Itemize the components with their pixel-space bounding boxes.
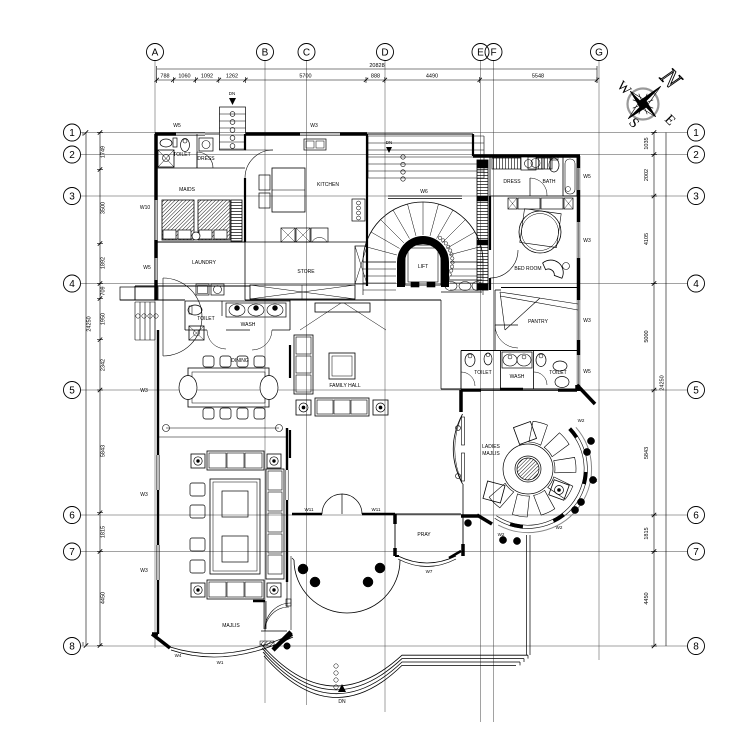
svg-text:W3: W3 — [140, 388, 148, 394]
svg-text:2: 2 — [693, 150, 699, 161]
svg-text:TOILET: TOILET — [197, 316, 214, 322]
svg-text:5700: 5700 — [299, 74, 311, 80]
svg-text:6: 6 — [693, 511, 699, 522]
svg-text:4490: 4490 — [426, 74, 438, 80]
svg-text:W7: W7 — [426, 569, 433, 574]
svg-text:1: 1 — [693, 128, 699, 139]
svg-text:788: 788 — [160, 74, 169, 80]
svg-text:B: B — [262, 48, 269, 59]
svg-text:7: 7 — [693, 547, 699, 558]
svg-text:TOILET: TOILET — [173, 152, 190, 158]
svg-text:1: 1 — [69, 128, 75, 139]
svg-text:W6: W6 — [420, 189, 428, 195]
svg-text:MAJLIS: MAJLIS — [482, 451, 500, 457]
svg-text:DRESS: DRESS — [503, 179, 521, 185]
svg-text:W11: W11 — [305, 507, 314, 512]
svg-text:2: 2 — [69, 150, 75, 161]
svg-text:1035: 1035 — [644, 137, 650, 149]
svg-text:4450: 4450 — [644, 592, 650, 604]
svg-text:3500: 3500 — [101, 202, 107, 214]
svg-text:2342: 2342 — [101, 359, 107, 371]
svg-text:W2: W2 — [591, 478, 598, 483]
svg-text:MAJLIS: MAJLIS — [222, 623, 240, 629]
svg-text:FAMILY HALL: FAMILY HALL — [329, 383, 360, 389]
svg-text:24250: 24250 — [87, 316, 93, 331]
svg-text:8: 8 — [693, 642, 699, 653]
svg-text:W5: W5 — [143, 265, 151, 271]
svg-text:3: 3 — [693, 192, 699, 203]
svg-text:1262: 1262 — [226, 74, 238, 80]
svg-text:2002: 2002 — [644, 169, 650, 181]
svg-text:DN: DN — [386, 140, 393, 145]
svg-text:5548: 5548 — [532, 74, 544, 80]
svg-text:5: 5 — [693, 386, 699, 397]
svg-text:5000: 5000 — [644, 330, 650, 342]
svg-text:709: 709 — [101, 286, 107, 295]
svg-text:W2: W2 — [556, 525, 563, 530]
svg-text:6: 6 — [69, 511, 75, 522]
svg-text:8: 8 — [69, 642, 75, 653]
svg-text:W3: W3 — [583, 318, 591, 324]
svg-text:1092: 1092 — [201, 74, 213, 80]
svg-text:W3: W3 — [310, 123, 318, 129]
svg-text:G: G — [595, 48, 603, 59]
svg-text:PRAY: PRAY — [417, 532, 431, 538]
svg-text:DN: DN — [338, 699, 346, 705]
svg-text:C: C — [303, 48, 310, 59]
svg-text:W5: W5 — [583, 174, 591, 180]
svg-text:5843: 5843 — [644, 447, 650, 459]
svg-text:4: 4 — [693, 279, 699, 290]
svg-text:DN: DN — [229, 91, 236, 96]
svg-text:20828: 20828 — [369, 63, 384, 69]
svg-text:BATH: BATH — [543, 179, 556, 185]
svg-text:1749: 1749 — [101, 146, 107, 158]
svg-text:W1: W1 — [217, 660, 224, 665]
svg-text:W5: W5 — [173, 123, 181, 129]
svg-text:24250: 24250 — [660, 375, 666, 390]
svg-text:888: 888 — [371, 74, 380, 80]
svg-text:3: 3 — [69, 192, 75, 203]
svg-text:4450: 4450 — [101, 592, 107, 604]
svg-text:STORE: STORE — [297, 269, 315, 275]
svg-text:4105: 4105 — [644, 233, 650, 245]
svg-text:LADIES: LADIES — [482, 444, 500, 450]
svg-text:PANTRY: PANTRY — [528, 319, 548, 325]
svg-text:4: 4 — [69, 279, 75, 290]
svg-text:W3: W3 — [140, 568, 148, 574]
svg-text:1950: 1950 — [101, 313, 107, 325]
svg-text:5: 5 — [69, 386, 75, 397]
svg-text:LAUNDRY: LAUNDRY — [192, 260, 216, 266]
svg-text:TOILET: TOILET — [474, 370, 491, 376]
svg-text:7: 7 — [69, 547, 75, 558]
svg-text:W5: W5 — [583, 369, 591, 375]
svg-text:WASH: WASH — [510, 374, 525, 380]
svg-text:WASH: WASH — [241, 322, 256, 328]
svg-text:1060: 1060 — [178, 74, 190, 80]
svg-text:F: F — [490, 48, 496, 59]
svg-text:DINING: DINING — [231, 358, 249, 364]
svg-text:A: A — [152, 48, 159, 59]
svg-text:W4: W4 — [175, 653, 182, 658]
svg-text:W3: W3 — [140, 492, 148, 498]
svg-text:W2: W2 — [578, 418, 585, 423]
svg-text:1815: 1815 — [101, 526, 107, 538]
svg-text:W3: W3 — [583, 238, 591, 244]
svg-text:BED ROOM: BED ROOM — [514, 266, 541, 272]
svg-text:D: D — [381, 48, 388, 59]
svg-text:W10: W10 — [140, 205, 151, 211]
svg-text:W2: W2 — [498, 532, 505, 537]
svg-text:LIFT: LIFT — [418, 264, 428, 270]
svg-text:W11: W11 — [372, 507, 381, 512]
svg-text:E: E — [477, 48, 484, 59]
svg-text:DRESS: DRESS — [197, 156, 215, 162]
svg-text:5843: 5843 — [101, 445, 107, 457]
svg-text:1815: 1815 — [644, 527, 650, 539]
svg-text:KITCHEN: KITCHEN — [317, 182, 339, 188]
svg-text:1892: 1892 — [101, 257, 107, 269]
svg-text:MAIDS: MAIDS — [179, 187, 196, 193]
